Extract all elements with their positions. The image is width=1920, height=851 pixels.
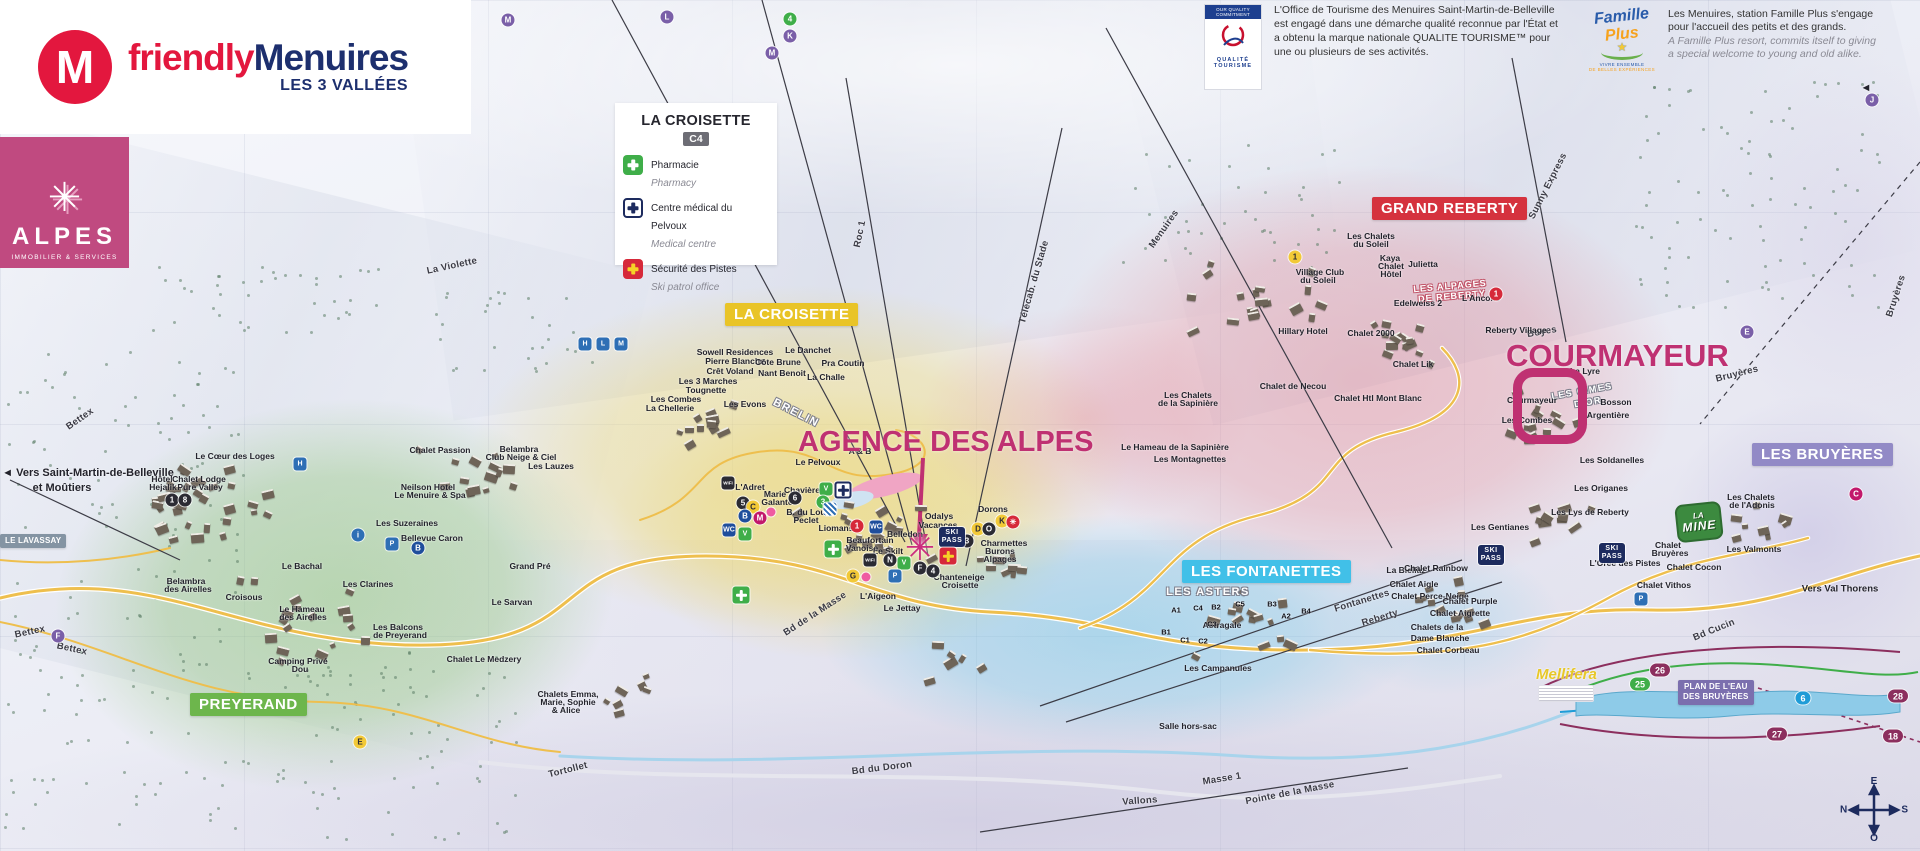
building bbox=[1405, 337, 1413, 345]
map-label: B3 bbox=[1267, 600, 1277, 609]
legend-title: LA CROISETTE bbox=[623, 113, 769, 129]
map-label: Chalet Lik bbox=[1393, 359, 1434, 369]
map-label: Les Montagnettes bbox=[1154, 454, 1226, 464]
map-badge: P bbox=[889, 570, 902, 583]
map-label: Alpages bbox=[983, 554, 1016, 564]
map-label: Les Clarines bbox=[343, 579, 394, 589]
map-label: des Airelles bbox=[164, 584, 211, 594]
qt-mark-icon bbox=[1216, 19, 1250, 55]
building bbox=[250, 577, 258, 585]
fp-tagline-2: DE BELLES EXPÉRIENCES bbox=[1588, 67, 1656, 72]
map-label: Le Sarvan bbox=[492, 597, 533, 607]
building bbox=[1276, 634, 1284, 642]
map-label: et Moûtiers bbox=[33, 482, 92, 494]
map-badge: 1 bbox=[851, 520, 864, 533]
building bbox=[986, 564, 996, 571]
brand-friendly-text: friendly bbox=[128, 37, 254, 78]
map-label: Les Suzeraines bbox=[376, 518, 438, 528]
courmayeur-highlight-rect bbox=[1513, 368, 1587, 444]
map-label: Pure Valley bbox=[177, 482, 222, 492]
building bbox=[1731, 513, 1743, 523]
map-badge: 25 bbox=[1630, 678, 1650, 691]
qualite-tourisme-box: OUR QUALITY COMMITMENT QUALITÉ TOURISME … bbox=[1204, 4, 1560, 90]
ski-school-badge bbox=[824, 503, 837, 516]
building bbox=[697, 424, 704, 432]
map-label: de Preyerand bbox=[373, 630, 427, 640]
map-label: Vers Val Thorens bbox=[1802, 584, 1879, 595]
map-badge: J bbox=[1866, 94, 1879, 107]
map-label: Chalet Le Medzery bbox=[447, 654, 522, 664]
compass-e: E bbox=[1871, 776, 1878, 787]
map-label: Chalet Aigle bbox=[1390, 579, 1439, 589]
zone-label-preyerand: PREYERAND bbox=[190, 693, 307, 716]
valley-road bbox=[480, 762, 1500, 798]
map-label: Edelweiss 2 bbox=[1394, 298, 1442, 308]
map-label: Chalet 2000 bbox=[1347, 328, 1394, 338]
map-label: Chalet Vithos bbox=[1637, 580, 1691, 590]
map-badge: P bbox=[1635, 593, 1648, 606]
agence-des-alpes-callout: AGENCE DES ALPES bbox=[798, 426, 1093, 459]
legend-label-en: Ski patrol office bbox=[651, 282, 719, 293]
map-label: A2 bbox=[1281, 612, 1291, 621]
map-label: de la Sapinière bbox=[1158, 398, 1218, 408]
legend-label-fr: Centre médical du Pelvoux bbox=[651, 203, 732, 232]
map-label: Chalet Purple bbox=[1443, 596, 1498, 606]
map-badge: L bbox=[597, 338, 610, 351]
legend-label-fr: Pharmacie bbox=[651, 160, 699, 171]
map-badge: 8 bbox=[179, 494, 192, 507]
cross-pharmacy-icon bbox=[733, 587, 750, 604]
fp-plus-text: Plus bbox=[1604, 24, 1639, 45]
map-label: Chalet de Necou bbox=[1260, 381, 1327, 391]
building bbox=[343, 614, 354, 623]
building bbox=[1277, 597, 1287, 608]
map-label: Grand Pré bbox=[509, 561, 550, 571]
famille-plus-text-en: A Famille Plus resort, commits itself to… bbox=[1668, 35, 1880, 62]
map-label: B2 bbox=[1211, 603, 1221, 612]
building bbox=[1226, 317, 1239, 325]
river bbox=[560, 712, 1570, 760]
map-label: Bruyères bbox=[1652, 548, 1689, 558]
map-badge: ✳ bbox=[1007, 516, 1020, 529]
legend-label-en: Pharmacy bbox=[651, 178, 696, 189]
zone-label-les-bruyeres: LES BRUYÈRES bbox=[1752, 443, 1893, 466]
legend-item-pharmacy: PharmaciePharmacy bbox=[623, 155, 769, 191]
map-badge: 28 bbox=[1888, 690, 1908, 703]
map-label: Les Gentianes bbox=[1471, 522, 1529, 532]
map-label: Le Menuire & Spa bbox=[394, 490, 465, 500]
map-label: Dame Blanche bbox=[1411, 633, 1470, 643]
map-label: B1 bbox=[1161, 628, 1171, 637]
building bbox=[265, 633, 277, 643]
map-label: La Chellerie bbox=[646, 403, 694, 413]
friendly-menuires-logo: M friendlyMenuires LES 3 VALLÉES bbox=[0, 0, 471, 134]
building bbox=[1186, 292, 1196, 301]
map-label: Reberty Village bbox=[1485, 325, 1546, 335]
map-badge: E bbox=[1741, 326, 1754, 339]
alpes-name: ALPES bbox=[12, 223, 117, 251]
map-label: Crêt Voland bbox=[706, 366, 753, 376]
building bbox=[361, 636, 371, 646]
map-badge: V bbox=[739, 528, 752, 541]
cross-medical-icon bbox=[835, 482, 852, 499]
building bbox=[707, 419, 716, 428]
building bbox=[503, 464, 515, 474]
map-badge: M bbox=[502, 14, 515, 27]
map-label: des Airelles bbox=[279, 612, 326, 622]
map-badge: WC bbox=[723, 524, 736, 537]
map-badge: E bbox=[354, 736, 367, 749]
la-croisette-legend: LA CROISETTE C4 PharmaciePharmacy Centre… bbox=[615, 103, 777, 265]
map-label: L'Adret bbox=[735, 482, 764, 492]
map-label: A1 bbox=[1171, 606, 1181, 615]
map-label: Le Danchet bbox=[785, 345, 831, 355]
map-label: ◄ Vers Saint-Martin-de-Belleville bbox=[2, 467, 174, 479]
map-label: Les Lys de Reberty bbox=[1551, 507, 1629, 517]
pink-dot-badge bbox=[767, 508, 776, 517]
map-label: C2 bbox=[1198, 637, 1208, 646]
building bbox=[236, 575, 245, 585]
agence-des-alpes-logo: ✳ ✳ ALPES IMMOBILIER & SERVICES bbox=[0, 137, 129, 268]
medical-cross-icon bbox=[623, 198, 643, 218]
pharmacy-cross-icon bbox=[623, 155, 643, 175]
map-badge: WC bbox=[870, 521, 883, 534]
map-badge: 1 bbox=[1490, 288, 1503, 301]
map-label: & Alice bbox=[552, 705, 581, 715]
mellifera-logo: Mellifera bbox=[1536, 666, 1597, 702]
map-label: Dou bbox=[292, 664, 309, 674]
map-label: du Soleil bbox=[1300, 275, 1335, 285]
map-label: Dorons bbox=[978, 504, 1008, 514]
map-label: C1 bbox=[1180, 636, 1190, 645]
map-badge: WiFi bbox=[722, 477, 735, 490]
map-label: Chalet Corbeau bbox=[1417, 645, 1480, 655]
map-label: Les Origanes bbox=[1574, 483, 1628, 493]
map-label: Argentière bbox=[1587, 410, 1630, 420]
map-label: Chalet Cocon bbox=[1667, 562, 1722, 572]
legend-label-fr: Sécurité des Pistes bbox=[651, 264, 737, 275]
compass-rose: E N S O bbox=[1842, 778, 1906, 842]
map-badge: C bbox=[1850, 488, 1863, 501]
grid-code-badge: C4 bbox=[683, 132, 709, 146]
map-badge: G bbox=[847, 570, 860, 583]
building bbox=[204, 523, 211, 533]
map-label: Liomans bbox=[819, 523, 854, 533]
map-badge: H bbox=[294, 458, 307, 471]
famille-plus-logo: FamillePlus ★ VIVRE ENSEMBLE DE BELLES E… bbox=[1588, 8, 1656, 72]
map-badge: F bbox=[52, 630, 65, 643]
compass-s: S bbox=[1901, 805, 1908, 816]
map-label: Le Cœur des Loges bbox=[195, 451, 274, 461]
ski-pass-badge: SKIPASS bbox=[939, 527, 965, 547]
building bbox=[459, 476, 469, 484]
map-label: Les Evons bbox=[724, 399, 767, 409]
map-badge: 6 bbox=[789, 492, 802, 505]
map-badge: 4 bbox=[784, 13, 797, 26]
pink-dot-badge bbox=[862, 573, 871, 582]
qt-logo-text: QUALITÉ TOURISME bbox=[1205, 57, 1261, 69]
map-label: Le Jettay bbox=[884, 603, 921, 613]
map-badge: 18 bbox=[1883, 730, 1903, 743]
compass-o: O bbox=[1870, 833, 1878, 844]
map-badge: M bbox=[615, 338, 628, 351]
legend-label-en: Medical centre bbox=[651, 239, 716, 250]
brand-tagline: LES 3 VALLÉES bbox=[128, 77, 408, 95]
building bbox=[1741, 523, 1747, 530]
map-label: ◄ bbox=[1861, 82, 1872, 94]
building bbox=[250, 509, 257, 516]
map-badge: 1 bbox=[166, 494, 179, 507]
map-label: Croisous bbox=[226, 592, 263, 602]
map-label: LES ASTERS bbox=[1166, 586, 1250, 598]
agence-location-snowflake-icon: ✳ bbox=[905, 530, 935, 566]
map-badge: O bbox=[983, 523, 996, 536]
map-label: Julietta bbox=[1408, 259, 1438, 269]
menuires-m-icon: M bbox=[38, 30, 112, 104]
map-badge: WiFi bbox=[864, 554, 877, 567]
ski-pass-badge: SKIPASS bbox=[1478, 545, 1504, 565]
cross-patrol-icon bbox=[940, 548, 957, 565]
map-label: C4 bbox=[1193, 604, 1203, 613]
qualite-tourisme-logo: OUR QUALITY COMMITMENT QUALITÉ TOURISME bbox=[1204, 4, 1262, 90]
map-label: Le Hameau de la Sapinière bbox=[1121, 442, 1229, 452]
ski-pass-badge: SKIPASS bbox=[1599, 543, 1625, 563]
map-badge: L bbox=[661, 11, 674, 24]
map-label: Peclet bbox=[793, 515, 818, 525]
map-label: B4 bbox=[1301, 607, 1311, 616]
zone-label-la-croisette: LA CROISETTE bbox=[725, 303, 858, 326]
compass-n: N bbox=[1840, 805, 1847, 816]
map-badge: H bbox=[579, 338, 592, 351]
qt-logo-header: OUR QUALITY COMMITMENT bbox=[1205, 5, 1261, 19]
map-badge: B bbox=[739, 510, 752, 523]
map-label: de l'Adonis bbox=[1729, 500, 1774, 510]
map-badge: 27 bbox=[1767, 728, 1787, 741]
map-badge: 26 bbox=[1650, 664, 1670, 677]
famille-plus-box: FamillePlus ★ VIVRE ENSEMBLE DE BELLES E… bbox=[1588, 8, 1880, 72]
map-badge: i bbox=[352, 529, 365, 542]
map-label: Chalet Htl Mont Blanc bbox=[1334, 393, 1422, 403]
famille-plus-text-fr: Les Menuires, station Famille Plus s'eng… bbox=[1668, 8, 1880, 35]
building bbox=[223, 517, 232, 526]
mellifera-label-box bbox=[1538, 685, 1594, 702]
alpes-snowflake-icon: ✳ ✳ bbox=[42, 175, 88, 221]
m-letter: M bbox=[56, 40, 94, 94]
qualite-tourisme-text: L'Office de Tourisme des Menuires Saint-… bbox=[1274, 4, 1560, 90]
map-badge: P bbox=[386, 538, 399, 551]
star-icon: ★ bbox=[1588, 44, 1656, 51]
map-badge: 6 bbox=[1795, 692, 1810, 705]
building bbox=[1248, 311, 1260, 321]
cross-pharmacy-icon bbox=[825, 541, 842, 558]
map-label: La Challe bbox=[807, 372, 845, 382]
brand-menuires-text: Menuires bbox=[254, 37, 408, 78]
map-label: Nant Benoit bbox=[758, 368, 806, 378]
map-label: Les Campanules bbox=[1184, 663, 1252, 673]
map-label: Chalet Passion bbox=[410, 445, 471, 455]
map-label: Côte Brune bbox=[755, 357, 801, 367]
map-badge: 1 bbox=[1289, 251, 1302, 264]
map-label: Les Valmonts bbox=[1727, 544, 1782, 554]
map-badge: M bbox=[754, 512, 767, 525]
zone-label-plan-de-leau: PLAN DE L'EAU DES BRUYÈRES bbox=[1678, 680, 1754, 705]
alpes-subtitle: IMMOBILIER & SERVICES bbox=[11, 254, 117, 261]
map-badge: N bbox=[884, 554, 897, 567]
legend-item-ski-patrol: Sécurité des PistesSki patrol office bbox=[623, 259, 769, 295]
map-label: Le Bachal bbox=[282, 561, 322, 571]
building bbox=[932, 641, 945, 649]
map-label: C3 bbox=[1207, 620, 1217, 629]
building bbox=[685, 426, 694, 433]
map-label: Hôtel bbox=[1380, 269, 1401, 279]
map-label: Les Lauzes bbox=[528, 461, 574, 471]
map-label: Chalets de la bbox=[1411, 622, 1463, 632]
map-label: Bosson bbox=[1600, 397, 1631, 407]
map-label: Chalet Aigrette bbox=[1430, 608, 1490, 618]
map-label: Chalet Rainbow bbox=[1404, 563, 1468, 573]
map-label: du Soleil bbox=[1353, 239, 1388, 249]
map-label: Hillary Hotel bbox=[1278, 326, 1328, 336]
legend-item-medical: Centre médical du PelvouxMedical centre bbox=[623, 198, 769, 252]
building bbox=[1016, 565, 1027, 574]
map-label: Pra Coutin bbox=[822, 358, 865, 368]
les-menuires-resort-map: LA CROISETTEGRAND REBERTYLES FONTANETTES… bbox=[0, 0, 1920, 851]
map-badge: B bbox=[412, 542, 425, 555]
zone-label-grand-reberty: GRAND REBERTY bbox=[1372, 197, 1527, 220]
map-label: Bellevue Caron bbox=[401, 533, 463, 543]
zone-label-le-lavassay: LE LAVASSAY bbox=[0, 534, 66, 548]
map-badge: V bbox=[820, 483, 833, 496]
ski-patrol-cross-icon bbox=[623, 259, 643, 279]
map-label: Croisette bbox=[942, 580, 979, 590]
map-label: L'Aigeon bbox=[860, 591, 896, 601]
map-badge: K bbox=[784, 30, 797, 43]
map-label: Salle hors-sac bbox=[1159, 721, 1217, 731]
zone-label-les-fontanettes: LES FONTANETTES bbox=[1182, 560, 1351, 583]
map-label: C5 bbox=[1235, 600, 1245, 609]
map-badge: M bbox=[766, 47, 779, 60]
map-label: Les Soldanelles bbox=[1580, 455, 1644, 465]
building bbox=[190, 533, 204, 544]
building bbox=[1255, 297, 1268, 306]
la-mine-logo: LA MINE bbox=[1674, 501, 1724, 544]
